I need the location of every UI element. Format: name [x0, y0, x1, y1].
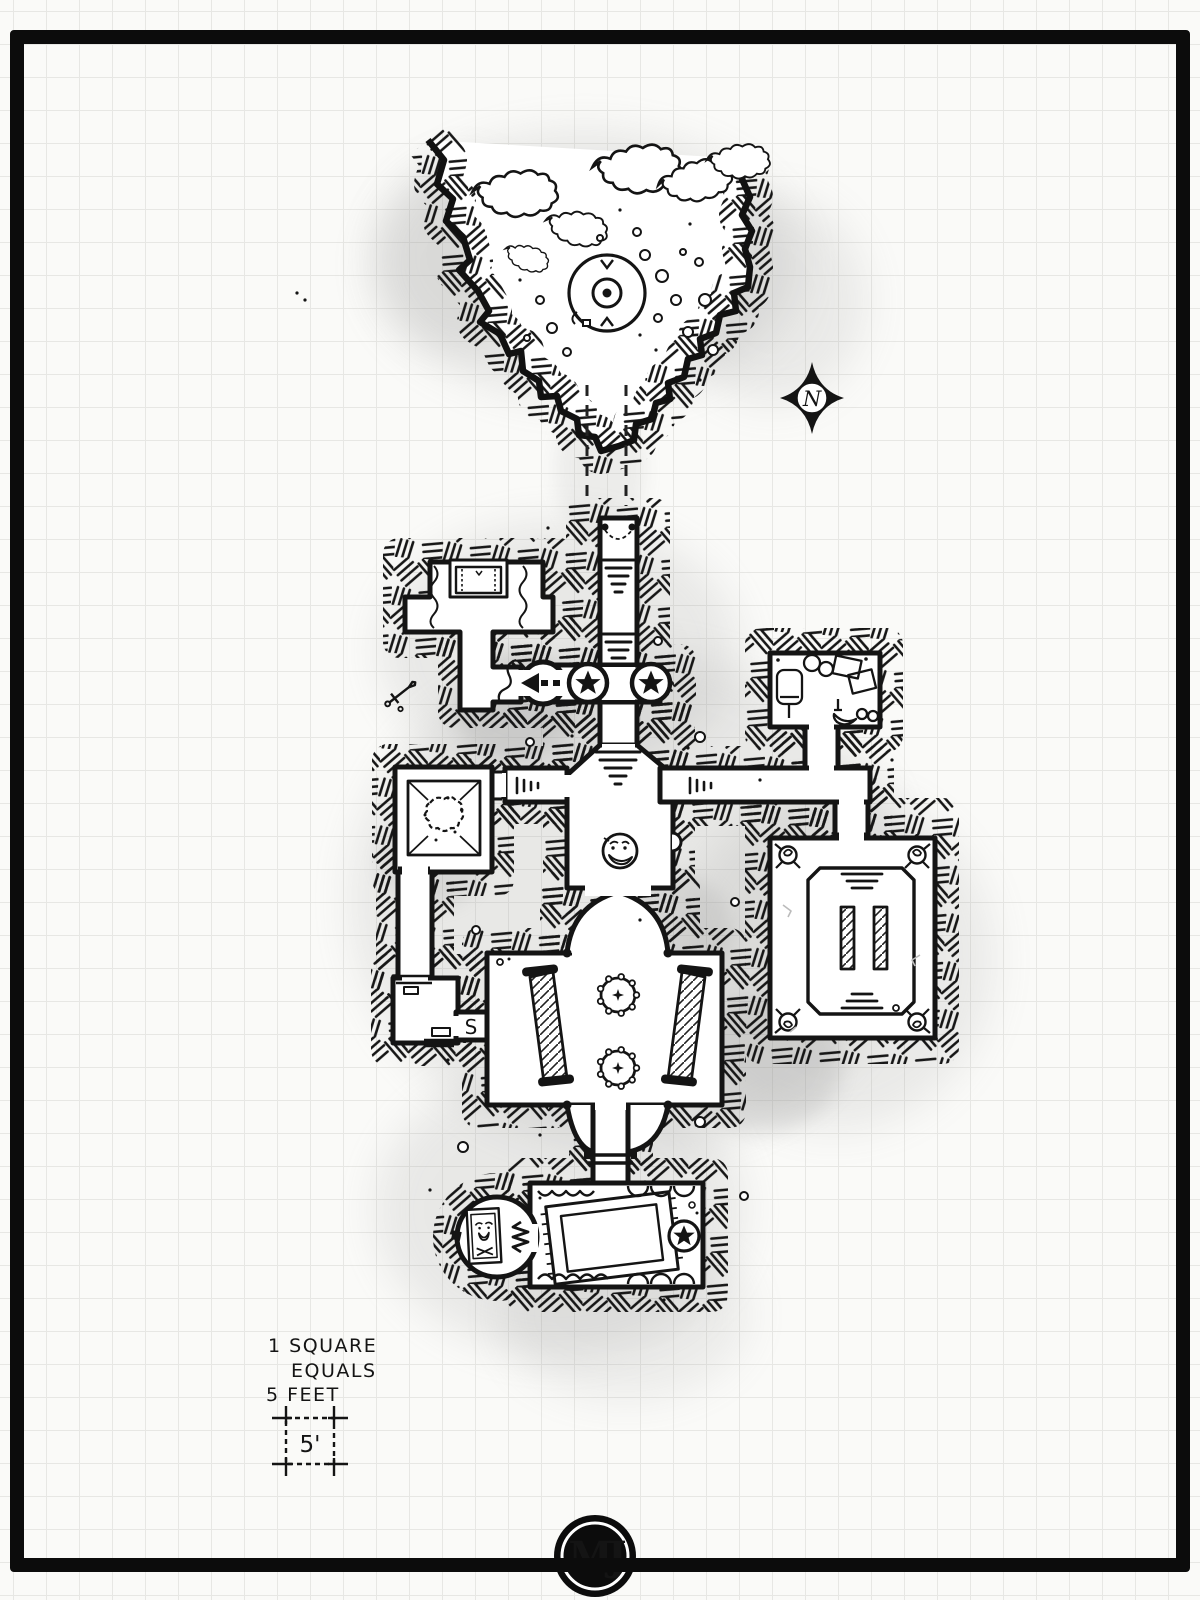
map-page: N	[0, 0, 1200, 1600]
page-frame-border	[10, 30, 1190, 1572]
